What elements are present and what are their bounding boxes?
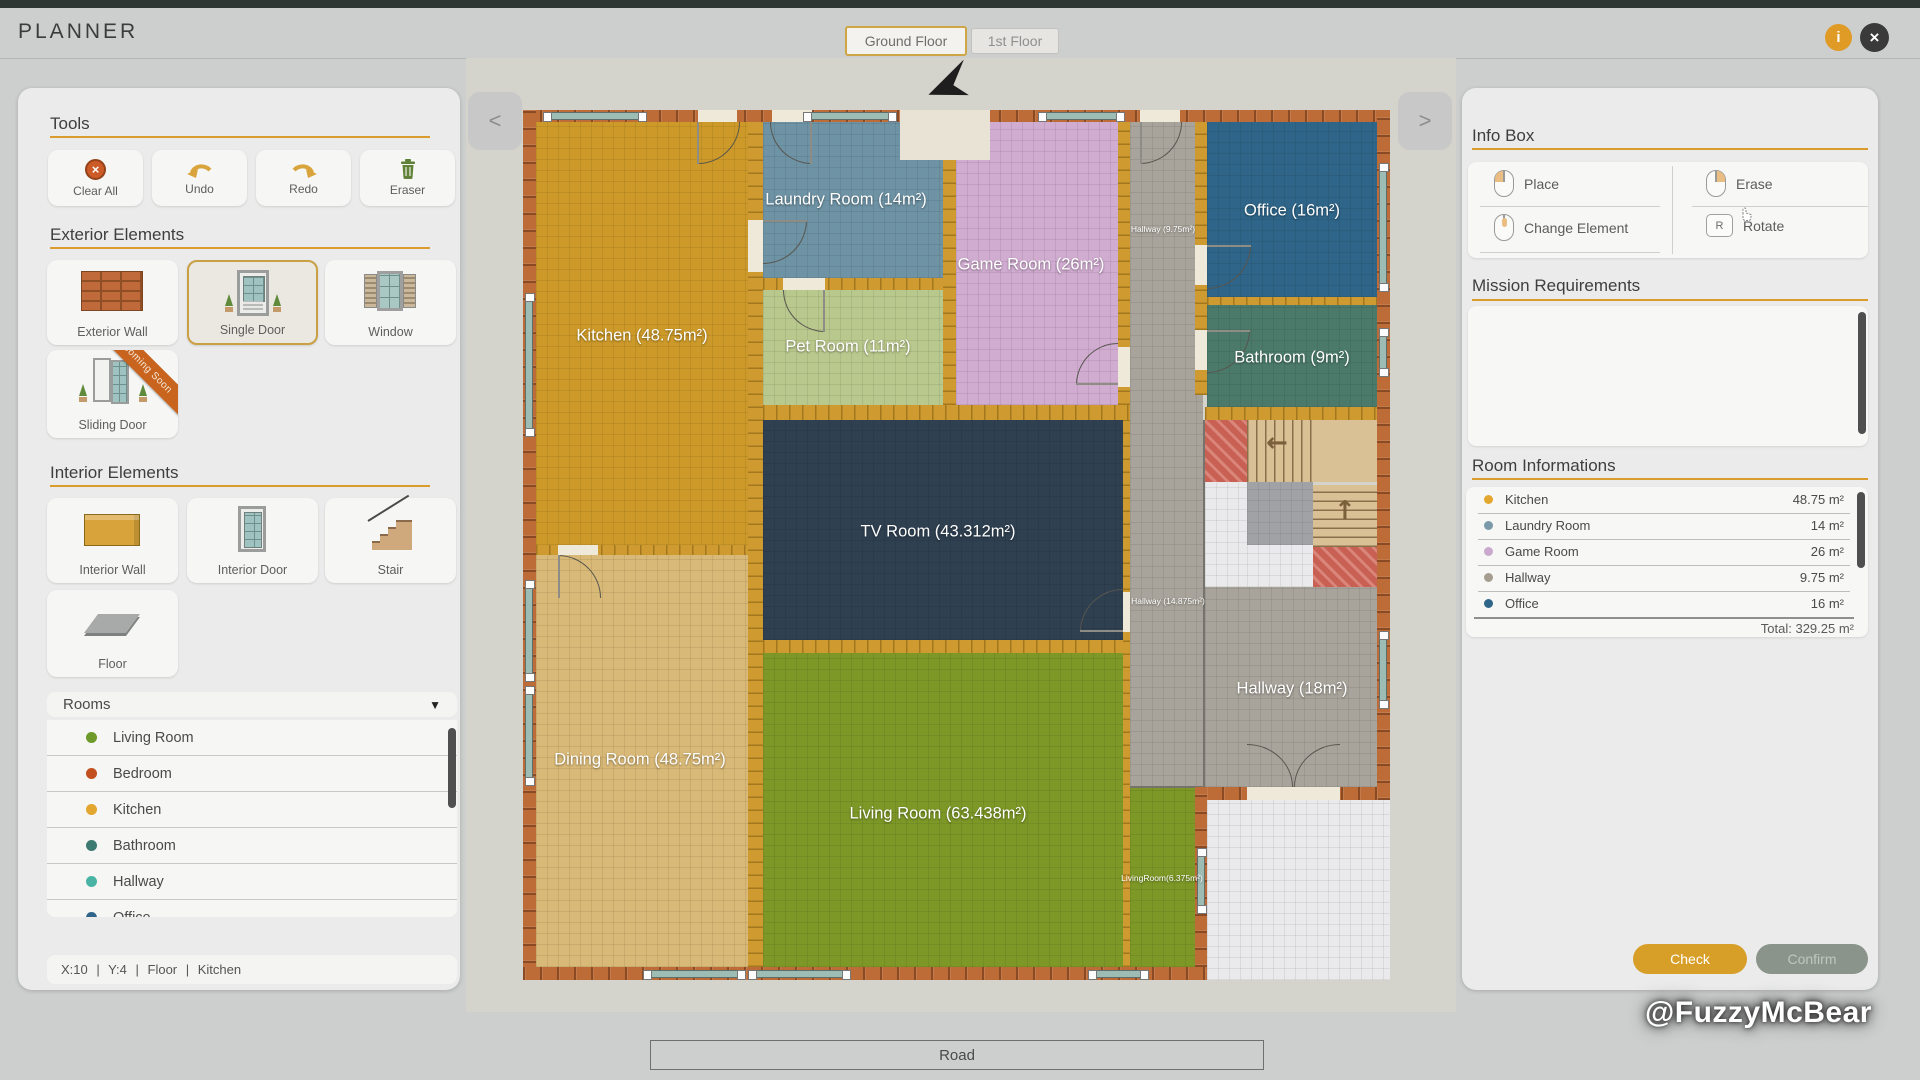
patio-floor[interactable] bbox=[1207, 800, 1390, 980]
door-leaf bbox=[763, 220, 807, 222]
room-label-living-strip: LivingRoom(6.375m²) bbox=[1121, 873, 1203, 883]
door-leaf bbox=[1207, 245, 1251, 247]
status-bar: X:10 | Y:4 | Floor | Kitchen bbox=[47, 955, 457, 984]
interior-wall[interactable] bbox=[763, 640, 1123, 653]
room-label-office: Office (16m²) bbox=[1244, 202, 1340, 221]
infobox-panel: Place Change Element Erase R Rotate bbox=[1468, 162, 1868, 258]
infobox-rule bbox=[1472, 148, 1868, 150]
room-label-hallway: Hallway (18m²) bbox=[1237, 680, 1348, 699]
stair-blocked-area[interactable] bbox=[1205, 420, 1247, 482]
stair-arrow-left-icon: ← bbox=[1266, 428, 1288, 458]
room-info-line bbox=[1478, 565, 1850, 566]
infobox-place: Place bbox=[1494, 170, 1559, 197]
door-opening[interactable] bbox=[698, 110, 737, 122]
room-list-item[interactable]: Living Room bbox=[47, 720, 457, 756]
floor-plan[interactable]: ← ↑ bbox=[523, 110, 1390, 980]
redo-button[interactable]: Redo bbox=[256, 150, 351, 206]
room-label-game: Game Room (26m²) bbox=[958, 256, 1105, 275]
room-info-heading: Room Informations bbox=[1472, 456, 1616, 476]
app-title: PLANNER bbox=[18, 20, 138, 44]
mouse-left-click-icon bbox=[1494, 170, 1514, 197]
cursor-arrow-icon bbox=[925, 60, 969, 106]
infobox-line bbox=[1692, 206, 1868, 207]
room-info-scrollbar[interactable] bbox=[1857, 492, 1865, 568]
chevron-down-icon: ▼ bbox=[429, 698, 441, 712]
door-leaf bbox=[1207, 330, 1250, 332]
plant-icon bbox=[225, 294, 233, 312]
window[interactable] bbox=[545, 112, 645, 120]
door-leaf bbox=[697, 122, 699, 164]
room-color-dot bbox=[1484, 521, 1493, 530]
exterior-rule bbox=[50, 247, 430, 249]
room-color-dot bbox=[86, 876, 97, 887]
road-label: Road bbox=[650, 1040, 1264, 1070]
exterior-wall-icon bbox=[81, 271, 143, 311]
interior-rule bbox=[50, 485, 430, 487]
window[interactable] bbox=[1379, 330, 1387, 375]
room-color-dot bbox=[1484, 547, 1493, 556]
r-key-icon: R bbox=[1706, 214, 1733, 237]
room-hallway-corridor[interactable] bbox=[1130, 122, 1203, 787]
door-leaf bbox=[1080, 630, 1123, 632]
door-opening[interactable] bbox=[1140, 110, 1180, 122]
window[interactable] bbox=[525, 295, 533, 435]
interior-heading: Interior Elements bbox=[50, 463, 179, 483]
room-label-hallway-small: Hallway (9.75m²) bbox=[1131, 224, 1195, 234]
tools-heading: Tools bbox=[50, 114, 90, 134]
infobox-erase: Erase bbox=[1706, 170, 1773, 197]
room-color-dot bbox=[86, 840, 97, 851]
window[interactable] bbox=[525, 688, 533, 784]
room-info-line bbox=[1478, 539, 1850, 540]
room-list-item[interactable]: Office bbox=[47, 900, 457, 917]
infobox-change-element: Change Element bbox=[1494, 214, 1628, 241]
chevron-left-icon: < bbox=[489, 108, 502, 134]
interior-door-item[interactable]: Interior Door bbox=[187, 498, 318, 583]
trash-icon bbox=[400, 159, 416, 179]
window-icon bbox=[364, 271, 416, 311]
tab-first-floor[interactable]: 1st Floor bbox=[971, 28, 1059, 54]
room-list-item[interactable]: Bedroom bbox=[47, 756, 457, 792]
room-label-kitchen: Kitchen (48.75m²) bbox=[576, 327, 707, 346]
infobox-heading: Info Box bbox=[1472, 126, 1534, 146]
door-opening[interactable] bbox=[1195, 330, 1207, 370]
stair-item[interactable]: Stair bbox=[325, 498, 456, 583]
interior-wall-item[interactable]: Interior Wall bbox=[47, 498, 178, 583]
floor-icon bbox=[84, 614, 140, 636]
door-opening[interactable] bbox=[748, 220, 763, 272]
stair-icon bbox=[368, 510, 414, 550]
rooms-list: Living Room Bedroom Kitchen Bathroom Hal… bbox=[47, 720, 457, 917]
room-info-rule bbox=[1472, 478, 1868, 480]
entrance-double-door[interactable] bbox=[1247, 787, 1340, 800]
room-label-living: Living Room (63.438m²) bbox=[850, 805, 1027, 824]
close-icon[interactable]: × bbox=[1860, 23, 1889, 52]
window-item[interactable]: Window bbox=[325, 260, 456, 345]
entrance-porch[interactable] bbox=[900, 110, 990, 160]
room-label-hallway-mid: Hallway (14.875m²) bbox=[1131, 596, 1205, 606]
rooms-scrollbar[interactable] bbox=[448, 728, 456, 808]
room-list-item[interactable]: Hallway bbox=[47, 864, 457, 900]
stair-blocked-area-2[interactable] bbox=[1313, 547, 1378, 587]
room-color-dot bbox=[1484, 495, 1493, 504]
info-icon[interactable]: i bbox=[1825, 24, 1852, 51]
plant-icon bbox=[273, 294, 281, 312]
mission-heading: Mission Requirements bbox=[1472, 276, 1640, 296]
window[interactable] bbox=[645, 970, 744, 978]
room-info-row: Game Room 26 m² bbox=[1484, 544, 1844, 559]
room-info-row: Hallway 9.75 m² bbox=[1484, 570, 1844, 585]
room-color-dot bbox=[1484, 573, 1493, 582]
plant-icon bbox=[139, 384, 147, 402]
planner-app: { "topbar": {"title": "PLANNER", "tab_gr… bbox=[0, 0, 1920, 1080]
window[interactable] bbox=[1379, 633, 1387, 707]
stair-landing-mid[interactable] bbox=[1247, 482, 1313, 545]
door-leaf bbox=[558, 555, 560, 598]
room-color-dot bbox=[86, 912, 97, 917]
room-info-total-line bbox=[1474, 617, 1854, 619]
room-color-dot bbox=[1484, 599, 1493, 608]
room-info-row: Kitchen 48.75 m² bbox=[1484, 492, 1844, 507]
stair-empty-floor-left[interactable] bbox=[1205, 482, 1247, 587]
door-leaf bbox=[1140, 122, 1142, 164]
strip-boundary-line bbox=[1130, 786, 1203, 788]
tools-rule bbox=[50, 136, 430, 138]
room-label-tv: TV Room (43.312m²) bbox=[861, 523, 1016, 542]
door-leaf bbox=[810, 122, 812, 164]
interior-wall[interactable] bbox=[1205, 407, 1378, 420]
mouse-right-click-icon bbox=[1706, 170, 1726, 197]
infobox-divider bbox=[1672, 166, 1673, 254]
watermark: @FuzzyMcBear bbox=[1645, 996, 1872, 1030]
room-color-dot bbox=[86, 732, 97, 743]
redo-icon bbox=[291, 160, 317, 178]
interior-wall-icon bbox=[84, 514, 140, 546]
interior-door-icon bbox=[238, 506, 266, 552]
interior-wall[interactable] bbox=[1207, 297, 1377, 305]
room-label-bathroom: Bathroom (9m²) bbox=[1234, 349, 1350, 368]
left-sidebar: Tools × Clear All Undo Redo Eraser Exter… bbox=[18, 88, 460, 990]
single-door-item[interactable]: Single Door bbox=[187, 260, 318, 345]
window[interactable] bbox=[1379, 165, 1387, 290]
room-info-line bbox=[1478, 513, 1850, 514]
check-button[interactable]: Check bbox=[1633, 944, 1747, 974]
mission-rule bbox=[1472, 299, 1868, 301]
interior-wall[interactable] bbox=[943, 160, 956, 405]
door-opening[interactable] bbox=[1123, 592, 1130, 632]
door-opening[interactable] bbox=[1118, 347, 1130, 387]
clear-all-button[interactable]: × Clear All bbox=[48, 150, 143, 206]
room-color-dot bbox=[86, 768, 97, 779]
room-color-dot bbox=[86, 804, 97, 815]
door-opening[interactable] bbox=[783, 278, 825, 290]
undo-icon bbox=[187, 160, 213, 178]
room-info-panel: Kitchen 48.75 m² Laundry Room 14 m² Game… bbox=[1466, 487, 1868, 637]
plant-icon bbox=[79, 384, 87, 402]
hand-cursor-icon bbox=[1740, 206, 1753, 221]
prev-floor-arrow[interactable]: < bbox=[468, 92, 522, 150]
stair-arrow-up-icon: ↑ bbox=[1334, 496, 1356, 526]
mission-scrollbar[interactable] bbox=[1858, 312, 1866, 434]
room-label-dining: Dining Room (48.75m²) bbox=[554, 751, 725, 770]
window[interactable] bbox=[1090, 970, 1147, 978]
room-info-line bbox=[1478, 591, 1850, 592]
window[interactable] bbox=[1040, 112, 1123, 120]
undo-button[interactable]: Undo bbox=[152, 150, 247, 206]
sliding-door-item[interactable]: Coming Soon Sliding Door bbox=[47, 350, 178, 438]
stair-empty-floor-bottom[interactable] bbox=[1247, 545, 1313, 587]
clear-all-icon: × bbox=[85, 159, 106, 180]
exterior-wall-left[interactable] bbox=[523, 110, 536, 980]
infobox-line bbox=[1480, 206, 1660, 207]
room-info-total: Total: 329.25 m² bbox=[1761, 621, 1854, 636]
room-list-item[interactable]: Bathroom bbox=[47, 828, 457, 864]
tab-ground-floor[interactable]: Ground Floor bbox=[845, 26, 967, 56]
single-door-icon bbox=[237, 270, 269, 316]
floor-item[interactable]: Floor bbox=[47, 590, 178, 677]
confirm-button[interactable]: Confirm bbox=[1756, 944, 1868, 974]
window[interactable] bbox=[750, 970, 849, 978]
exterior-heading: Exterior Elements bbox=[50, 225, 184, 245]
door-leaf bbox=[1076, 383, 1118, 385]
door-leaf bbox=[823, 290, 825, 332]
chevron-right-icon: > bbox=[1419, 108, 1432, 134]
interior-wall[interactable] bbox=[763, 405, 1130, 420]
room-label-laundry: Laundry Room (14m²) bbox=[765, 191, 926, 210]
top-dark-strip bbox=[0, 0, 1920, 8]
rooms-dropdown[interactable]: Rooms ▼ bbox=[47, 692, 457, 717]
door-opening[interactable] bbox=[558, 545, 598, 555]
eraser-button[interactable]: Eraser bbox=[360, 150, 455, 206]
room-info-row: Office 16 m² bbox=[1484, 596, 1844, 611]
mouse-middle-click-icon bbox=[1494, 214, 1514, 241]
room-list-item[interactable]: Kitchen bbox=[47, 792, 457, 828]
room-label-pet: Pet Room (11m²) bbox=[785, 338, 910, 357]
exterior-wall-item[interactable]: Exterior Wall bbox=[47, 260, 178, 345]
room-info-row: Laundry Room 14 m² bbox=[1484, 518, 1844, 533]
interior-wall[interactable] bbox=[1123, 420, 1130, 967]
stair-landing-top[interactable] bbox=[1313, 420, 1378, 482]
window[interactable] bbox=[805, 112, 895, 120]
mission-panel bbox=[1468, 306, 1868, 446]
right-sidebar: Info Box Place Change Element Erase R Ro… bbox=[1462, 88, 1878, 990]
window[interactable] bbox=[525, 582, 533, 680]
infobox-line bbox=[1480, 252, 1660, 253]
next-floor-arrow[interactable]: > bbox=[1398, 92, 1452, 150]
door-opening[interactable] bbox=[1195, 245, 1207, 285]
